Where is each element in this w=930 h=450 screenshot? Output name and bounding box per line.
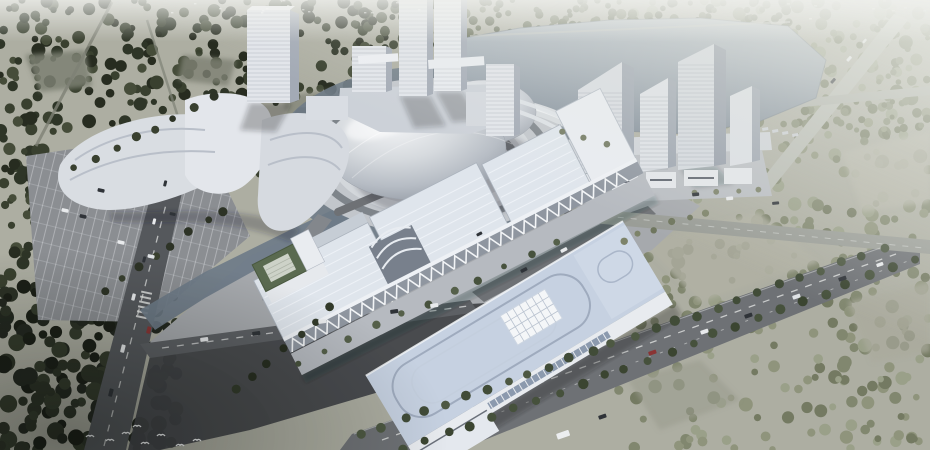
aerial-rendering [0, 0, 930, 450]
rendering-canvas [0, 0, 930, 450]
vignette-bottom-left [0, 0, 930, 450]
